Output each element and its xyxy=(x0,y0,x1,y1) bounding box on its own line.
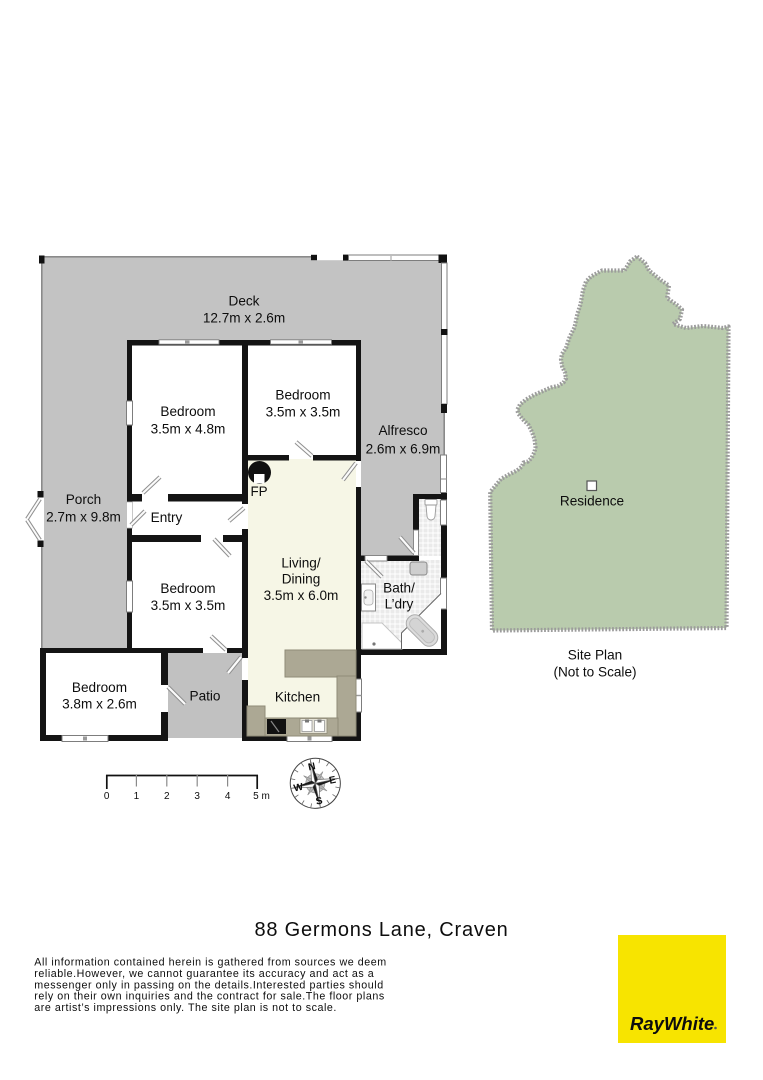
svg-text:3.5m x 3.5m: 3.5m x 3.5m xyxy=(151,598,226,613)
svg-text:Residence: Residence xyxy=(560,494,624,509)
svg-text:rely on their own inquiries an: rely on their own inquiries and the cont… xyxy=(34,991,384,1003)
svg-text:1: 1 xyxy=(134,791,140,802)
svg-text:3: 3 xyxy=(194,791,200,802)
svg-text:Patio: Patio xyxy=(190,689,221,704)
svg-text:88 Germons Lane, Craven: 88 Germons Lane, Craven xyxy=(254,919,508,941)
svg-text:FP: FP xyxy=(250,484,267,499)
svg-text:2.7m x 9.8m: 2.7m x 9.8m xyxy=(46,510,121,525)
svg-text:RayWhite: RayWhite xyxy=(630,1013,714,1034)
svg-text:4: 4 xyxy=(225,791,231,802)
svg-text:12.7m x 2.6m: 12.7m x 2.6m xyxy=(203,311,285,326)
svg-text:0: 0 xyxy=(104,791,110,802)
svg-text:Kitchen: Kitchen xyxy=(275,690,320,705)
svg-text:Porch: Porch xyxy=(66,492,102,507)
svg-text:Deck: Deck xyxy=(229,294,260,309)
svg-text:(Not to Scale): (Not to Scale) xyxy=(553,665,636,680)
svg-text:Bath/: Bath/ xyxy=(383,581,415,596)
svg-text:3.5m x 3.5m: 3.5m x 3.5m xyxy=(266,405,341,420)
svg-text:2: 2 xyxy=(164,791,170,802)
svg-text:Bedroom: Bedroom xyxy=(275,388,330,403)
svg-text:are artist’s impressions only.: are artist’s impressions only. The site … xyxy=(34,1002,337,1014)
svg-text:2.6m x 6.9m: 2.6m x 6.9m xyxy=(366,442,441,457)
svg-text:Dining: Dining xyxy=(282,572,321,587)
svg-text:3.8m x 2.6m: 3.8m x 2.6m xyxy=(62,697,137,712)
svg-text:Bedroom: Bedroom xyxy=(160,581,215,596)
svg-text:Site Plan: Site Plan xyxy=(568,648,622,663)
svg-text:Bedroom: Bedroom xyxy=(72,680,127,695)
svg-text:3.5m x 4.8m: 3.5m x 4.8m xyxy=(151,422,226,437)
svg-text:messenger only in passing on t: messenger only in passing on the details… xyxy=(34,979,383,991)
svg-text:Living/: Living/ xyxy=(281,556,321,571)
svg-text:3.5m x 6.0m: 3.5m x 6.0m xyxy=(264,588,339,603)
svg-text:Alfresco: Alfresco xyxy=(378,423,427,438)
svg-text:reliable.However, we cannot gu: reliable.However, we cannot guarantee it… xyxy=(34,968,374,980)
svg-text:L’dry: L’dry xyxy=(385,597,414,612)
svg-text:Bedroom: Bedroom xyxy=(160,404,215,419)
svg-text:All information contained here: All information contained herein is gath… xyxy=(34,957,386,969)
svg-text:5 m: 5 m xyxy=(253,791,270,802)
svg-text:Entry: Entry xyxy=(151,510,183,525)
